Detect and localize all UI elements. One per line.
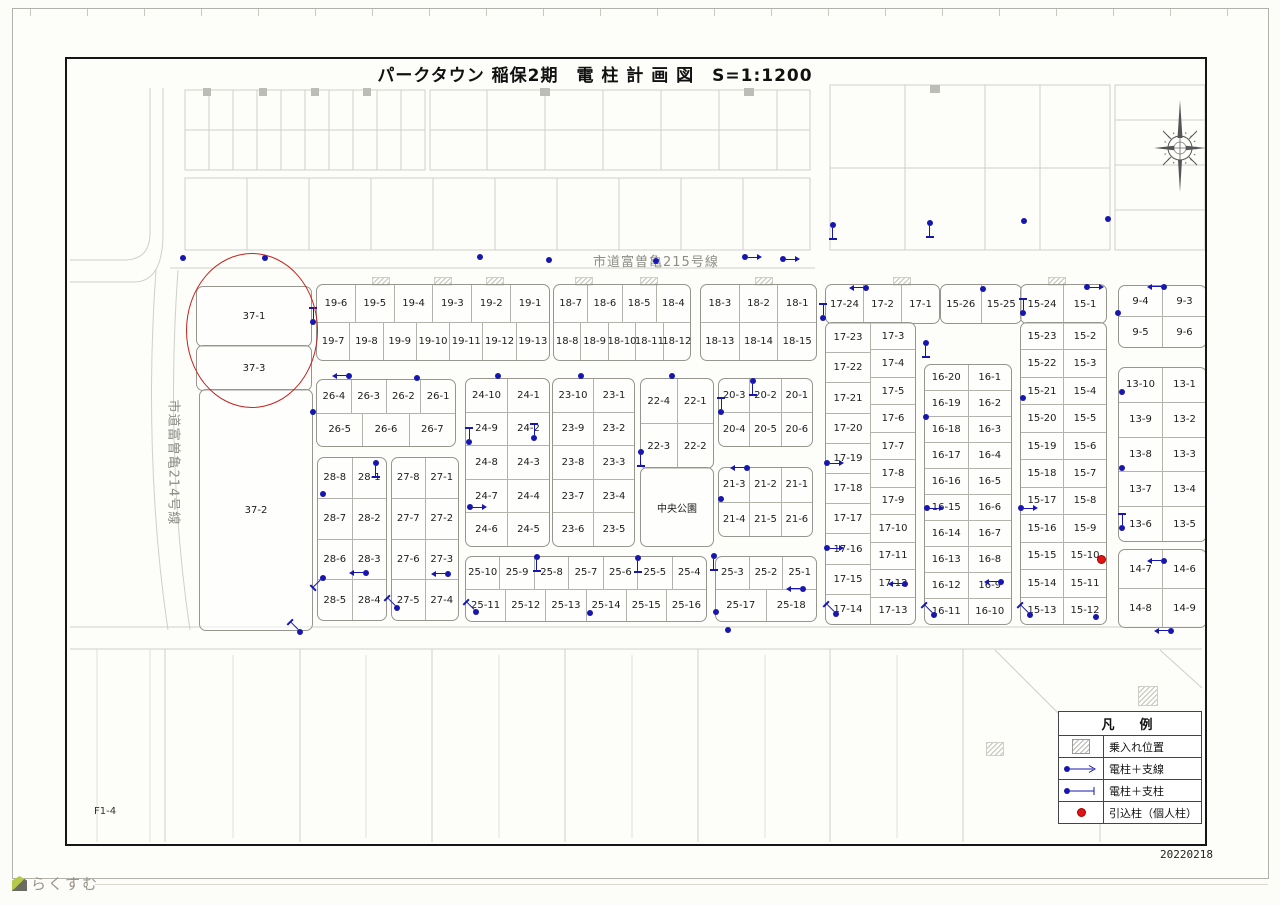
- lot-25-9: 25-9: [500, 557, 534, 589]
- lot-23-8: 23-8: [553, 446, 593, 480]
- lot-16-1: 16-1: [969, 365, 1012, 391]
- lot-14-7: 14-7: [1119, 550, 1163, 588]
- block-row: 20-420-520-6: [719, 413, 812, 446]
- block-37-2: 37-2: [199, 389, 313, 631]
- lot-25-15: 25-15: [627, 590, 667, 622]
- pole-guy-wire-symbol: [845, 284, 869, 291]
- lot-18-4: 18-4: [657, 285, 690, 322]
- service-pole-symbol: [1097, 555, 1106, 564]
- lot-25-2: 25-2: [750, 557, 784, 589]
- lot-24-6: 24-6: [466, 513, 507, 546]
- lot-17-15: 17-15: [826, 565, 870, 595]
- lot-16-13: 16-13: [925, 547, 968, 573]
- lot-17-19: 17-19: [826, 444, 870, 474]
- lot-25-18: 25-18: [767, 590, 817, 622]
- lot-25-16: 25-16: [667, 590, 706, 622]
- pole-symbol: [477, 254, 501, 261]
- pole-symbol: [1021, 218, 1045, 225]
- block-column: 23-1023-923-823-723-6: [553, 379, 594, 546]
- lot-16-10: 16-10: [969, 599, 1012, 624]
- lot-17-5: 17-5: [871, 378, 915, 405]
- lot-14-8: 14-8: [1119, 589, 1163, 627]
- lot-23-1: 23-1: [594, 379, 634, 413]
- lot-19-4: 19-4: [395, 285, 434, 322]
- pole-guy-wire-symbol: [824, 460, 848, 467]
- block-16: 16-2016-1916-1816-1716-1616-1516-1416-13…: [924, 364, 1012, 625]
- lot-18-12: 18-12: [664, 323, 690, 360]
- lot-15-4: 15-4: [1064, 378, 1106, 405]
- red-dot-icon: [1059, 802, 1104, 823]
- lot-19-11: 19-11: [450, 323, 483, 360]
- block-row: 19-719-819-919-1019-1119-1219-13: [317, 323, 549, 360]
- block-row: 21-421-521-6: [719, 503, 812, 537]
- lot-26-3: 26-3: [352, 380, 387, 413]
- lot-19-5: 19-5: [356, 285, 395, 322]
- pole-symbol: [1105, 216, 1129, 223]
- legend-row-driveway: 乗入れ位置: [1059, 736, 1201, 758]
- pole-symbol: [414, 375, 438, 382]
- legend-title: 凡 例: [1059, 712, 1201, 736]
- lot-16-3: 16-3: [969, 417, 1012, 443]
- lot-15-2: 15-2: [1064, 323, 1106, 350]
- pole-strut-symbol: [466, 421, 473, 445]
- lot-24-8: 24-8: [466, 446, 507, 480]
- lot-27-6: 27-6: [392, 540, 425, 581]
- lot-19-3: 19-3: [433, 285, 472, 322]
- lot-9-5: 9-5: [1119, 317, 1163, 347]
- block-park: 中央公園: [640, 467, 714, 547]
- lot-28-4: 28-4: [353, 580, 387, 620]
- lot-13-4: 13-4: [1163, 472, 1206, 507]
- pole-symbol: [1119, 465, 1143, 472]
- lot-25-6: 25-6: [604, 557, 638, 589]
- pole-symbol: [669, 373, 693, 380]
- lot-23-6: 23-6: [553, 513, 593, 546]
- pole-symbol: [1119, 389, 1143, 396]
- lot-16-20: 16-20: [925, 365, 968, 391]
- lot-26-5: 26-5: [317, 414, 363, 447]
- block-row: 17-2417-217-1: [826, 285, 939, 323]
- lot-26-4: 26-4: [317, 380, 352, 413]
- pole-guy-wire-symbol: [1018, 505, 1042, 512]
- lot-24-3: 24-3: [508, 446, 549, 480]
- lot-24-2: 24-2: [508, 413, 549, 447]
- lot-18-15: 18-15: [778, 323, 816, 360]
- lot-37-2: 37-2: [200, 390, 312, 630]
- lot-18-10: 18-10: [609, 323, 636, 360]
- block-row: 37-2: [200, 390, 312, 630]
- lot-17-20: 17-20: [826, 414, 870, 444]
- lot-15-14: 15-14: [1021, 570, 1063, 597]
- lot-25-3: 25-3: [716, 557, 750, 589]
- block-column: 27-127-227-327-4: [426, 458, 459, 620]
- block-22: 22-422-122-322-2: [640, 378, 714, 469]
- pole-symbol: [1020, 395, 1044, 402]
- pole-guy-wire-symbol: [726, 464, 750, 471]
- legend-label: 電柱＋支線: [1104, 758, 1201, 779]
- lot-25-4: 25-4: [673, 557, 706, 589]
- lot-18-9: 18-9: [581, 323, 608, 360]
- lot-28-1: 28-1: [353, 458, 387, 499]
- pole-guy-wire-symbol: [345, 569, 369, 576]
- pole-symbol: [180, 255, 204, 262]
- lot-23-9: 23-9: [553, 413, 593, 447]
- road-label-214: 市道富曽亀214号線: [166, 393, 185, 533]
- pole-guy-wire-symbol: [1143, 557, 1167, 564]
- lot-16-8: 16-8: [969, 547, 1012, 573]
- block-25L: 25-1025-925-825-725-625-525-425-1125-122…: [465, 556, 707, 622]
- block-column: 15-2315-2215-2115-2015-1915-1815-1715-16…: [1021, 323, 1064, 624]
- lot-9-3: 9-3: [1163, 286, 1206, 316]
- pole-symbol: [1115, 310, 1139, 317]
- lot-15-7: 15-7: [1064, 460, 1106, 487]
- lot-25-13: 25-13: [546, 590, 586, 622]
- lot-23-4: 23-4: [594, 480, 634, 514]
- pole-symbol: [495, 373, 519, 380]
- pole-arrow-icon: [1059, 758, 1104, 779]
- pole-strut-symbol: [372, 460, 379, 484]
- block-column: 24-1024-924-824-724-6: [466, 379, 508, 546]
- lot-14-6: 14-6: [1163, 550, 1206, 588]
- pole-strut-symbol: [634, 555, 641, 579]
- driveway-hatch: [986, 742, 1004, 756]
- lot-17-6: 17-6: [871, 405, 915, 432]
- lot-15-24: 15-24: [1021, 285, 1064, 323]
- lot-16-16: 16-16: [925, 469, 968, 495]
- lot-13-3: 13-3: [1163, 438, 1206, 473]
- lot-25-7: 25-7: [569, 557, 603, 589]
- block-column: 16-116-216-316-416-516-616-716-816-916-1…: [969, 365, 1012, 624]
- block-row: 26-526-626-7: [317, 414, 455, 447]
- north-compass-icon: [1148, 98, 1212, 194]
- lot-15-20: 15-20: [1021, 405, 1063, 432]
- lot-22-3: 22-3: [641, 424, 678, 468]
- pole-symbol: [980, 286, 1004, 293]
- block-27: 27-827-727-627-527-127-227-327-4: [391, 457, 459, 621]
- block-26: 26-426-326-226-126-526-626-7: [316, 379, 456, 447]
- block-row: 22-422-1: [641, 379, 713, 424]
- lot-23-10: 23-10: [553, 379, 593, 413]
- lot-21-1: 21-1: [782, 468, 812, 502]
- block-column: 28-828-728-628-5: [318, 458, 353, 620]
- lot-22-4: 22-4: [641, 379, 678, 423]
- driveway-hatch-icon: [1059, 736, 1104, 757]
- lot-20-5: 20-5: [750, 413, 781, 446]
- watermark-line: [95, 884, 1268, 885]
- block-column: 17-2317-2217-2117-2017-1917-1817-1717-16…: [826, 323, 871, 624]
- lot-16-6: 16-6: [969, 495, 1012, 521]
- block-row: 18-818-918-1018-1118-12: [554, 323, 690, 360]
- pole-guy-wire-symbol: [1084, 284, 1108, 291]
- watermark-text: らくすむ: [31, 873, 99, 894]
- lot-19-6: 19-6: [317, 285, 356, 322]
- lot-25-10: 25-10: [466, 557, 500, 589]
- pole-guy-wire-symbol: [1150, 627, 1174, 634]
- pole-strut-symbol: [820, 297, 827, 321]
- lot-13-5: 13-5: [1163, 507, 1206, 541]
- lot-17-3: 17-3: [871, 323, 915, 350]
- pole-guy-wire-symbol: [782, 585, 806, 592]
- lot-15-26: 15-26: [941, 285, 982, 323]
- lot-26-6: 26-6: [363, 414, 409, 447]
- lot-23-5: 23-5: [594, 513, 634, 546]
- lot-15-23: 15-23: [1021, 323, 1063, 350]
- date-label: 20220218: [1143, 848, 1213, 861]
- lot-24-4: 24-4: [508, 480, 549, 514]
- block-column: 16-2016-1916-1816-1716-1616-1516-1416-13…: [925, 365, 969, 624]
- lot-25-5: 25-5: [638, 557, 672, 589]
- pole-symbol: [546, 257, 570, 264]
- pole-symbol: [718, 496, 742, 503]
- lot-26-7: 26-7: [410, 414, 455, 447]
- watermark: らくすむ: [12, 873, 99, 894]
- lot-16-5: 16-5: [969, 469, 1012, 495]
- lot-23-3: 23-3: [594, 446, 634, 480]
- lot-26-1: 26-1: [421, 380, 455, 413]
- pole-symbol: [578, 373, 602, 380]
- block-row: 18-318-218-1: [701, 285, 816, 323]
- block-row: 26-426-326-226-1: [317, 380, 455, 414]
- pole-strut-symbol: [637, 449, 644, 473]
- lot-24-10: 24-10: [466, 379, 507, 413]
- pole-guy-wire-symbol: [328, 372, 352, 379]
- lot-13-1: 13-1: [1163, 368, 1206, 403]
- block-column: 15-215-315-415-515-615-715-815-915-1015-…: [1064, 323, 1106, 624]
- lot-25-1: 25-1: [783, 557, 816, 589]
- lot-17-13: 17-13: [871, 598, 915, 624]
- lot-27-1: 27-1: [426, 458, 459, 499]
- block-column: 17-317-417-517-617-717-817-917-1017-1117…: [871, 323, 915, 624]
- pole-strut-symbol: [1119, 507, 1126, 531]
- lot-19-7: 19-7: [317, 323, 350, 360]
- block-row: 20-320-220-1: [719, 379, 812, 413]
- block-row: 14-814-9: [1119, 589, 1206, 627]
- pole-strut-symbol: [829, 222, 836, 246]
- block-20: 20-320-220-120-420-520-6: [718, 378, 813, 447]
- lot-18-13: 18-13: [701, 323, 740, 360]
- legend-row-service-pole: 引込柱（個人柱）: [1059, 802, 1201, 823]
- block-19: 19-619-519-419-319-219-119-719-819-919-1…: [316, 284, 550, 361]
- lot-16-17: 16-17: [925, 443, 968, 469]
- block-row: 18-718-618-518-4: [554, 285, 690, 323]
- lot-18-6: 18-6: [588, 285, 622, 322]
- lot-21-2: 21-2: [750, 468, 781, 502]
- lot-13-9: 13-9: [1119, 403, 1162, 438]
- lot-17-23: 17-23: [826, 323, 870, 353]
- pole-symbol: [310, 409, 334, 416]
- lot-27-2: 27-2: [426, 499, 459, 540]
- lot-17-10: 17-10: [871, 515, 915, 542]
- lot-17-7: 17-7: [871, 433, 915, 460]
- pole-guy-wire-symbol: [780, 256, 804, 263]
- lot-13-2: 13-2: [1163, 403, 1206, 438]
- lot-19-9: 19-9: [384, 323, 417, 360]
- legend-box: 凡 例 乗入れ位置 電柱＋支線 電柱＋支柱 引込柱（個人柱）: [1058, 711, 1202, 824]
- block-row: 25-1725-18: [716, 590, 816, 622]
- lot-17-21: 17-21: [826, 383, 870, 413]
- block-row: 25-1125-1225-1325-1425-1525-16: [466, 590, 706, 622]
- lot-18-8: 18-8: [554, 323, 581, 360]
- lot-21-4: 21-4: [719, 503, 750, 537]
- lot-15-9: 15-9: [1064, 515, 1106, 542]
- lot-16-12: 16-12: [925, 573, 968, 599]
- legend-label: 電柱＋支柱: [1104, 780, 1201, 801]
- lot-17-1: 17-1: [902, 285, 939, 323]
- lot-15-22: 15-22: [1021, 350, 1063, 377]
- pole-guy-wire-symbol: [427, 570, 451, 577]
- lot-18-5: 18-5: [623, 285, 657, 322]
- lot-22-1: 22-1: [678, 379, 714, 423]
- lot-13-10: 13-10: [1119, 368, 1162, 403]
- lot-15-8: 15-8: [1064, 488, 1106, 515]
- pole-strut-icon: [1059, 780, 1104, 801]
- block-column: 13-113-213-313-413-5: [1163, 368, 1206, 541]
- pole-symbol: [713, 609, 737, 616]
- lot-15-3: 15-3: [1064, 350, 1106, 377]
- lot-27-8: 27-8: [392, 458, 425, 499]
- lot-24-5: 24-5: [508, 513, 549, 546]
- lot-25-12: 25-12: [506, 590, 546, 622]
- highlight-circle: [186, 253, 318, 408]
- lot-16-9: 16-9: [969, 573, 1012, 599]
- legend-row-pole-guy-wire: 電柱＋支線: [1059, 758, 1201, 780]
- lot-18-7: 18-7: [554, 285, 588, 322]
- lot-21-5: 21-5: [750, 503, 781, 537]
- lot-15-6: 15-6: [1064, 433, 1106, 460]
- lot-17-22: 17-22: [826, 353, 870, 383]
- lot-15-15: 15-15: [1021, 543, 1063, 570]
- lot-15-19: 15-19: [1021, 433, 1063, 460]
- driveway-hatch: [1138, 686, 1158, 706]
- pole-symbol: [725, 627, 749, 634]
- lot-15-18: 15-18: [1021, 460, 1063, 487]
- lot-27-5: 27-5: [392, 580, 425, 620]
- lot-23-7: 23-7: [553, 480, 593, 514]
- lot-25-17: 25-17: [716, 590, 767, 622]
- pole-guy-wire-symbol: [924, 505, 948, 512]
- pole-guy-wire-symbol: [742, 254, 766, 261]
- lot-21-6: 21-6: [782, 503, 812, 537]
- lot-24-1: 24-1: [508, 379, 549, 413]
- lot-中央公園: 中央公園: [641, 468, 713, 546]
- lot-16-4: 16-4: [969, 443, 1012, 469]
- drawing-title: パークタウン 稲保2期 電 柱 計 画 図 S=1:1200: [370, 61, 820, 86]
- legend-label: 乗入れ位置: [1104, 736, 1201, 757]
- block-row: 14-714-6: [1119, 550, 1206, 589]
- block-column: 24-124-224-324-424-5: [508, 379, 549, 546]
- pole-guy-wire-symbol: [884, 580, 908, 587]
- pole-strut-symbol: [926, 220, 933, 244]
- lot-9-6: 9-6: [1163, 317, 1206, 347]
- block-24: 24-1024-924-824-724-624-124-224-324-424-…: [465, 378, 550, 547]
- pole-symbol: [1093, 614, 1117, 621]
- block-row: 19-619-519-419-319-219-1: [317, 285, 549, 323]
- lot-18-14: 18-14: [740, 323, 779, 360]
- block-row: 9-59-6: [1119, 317, 1206, 347]
- pole-strut-symbol: [710, 553, 717, 577]
- lot-19-12: 19-12: [483, 323, 516, 360]
- lot-18-2: 18-2: [740, 285, 779, 322]
- block-column: 27-827-727-627-5: [392, 458, 426, 620]
- lot-16-14: 16-14: [925, 521, 968, 547]
- pole-symbol: [653, 258, 677, 265]
- lot-15-16: 15-16: [1021, 515, 1063, 542]
- legend-label: 引込柱（個人柱）: [1104, 802, 1201, 823]
- block-row: 22-322-2: [641, 424, 713, 468]
- block-row: 中央公園: [641, 468, 713, 546]
- block-row: 18-1318-1418-15: [701, 323, 816, 360]
- block-column: 23-123-223-323-423-5: [594, 379, 634, 546]
- lot-23-2: 23-2: [594, 413, 634, 447]
- lot-19-8: 19-8: [350, 323, 383, 360]
- block-17T: 17-2417-217-1: [825, 284, 940, 324]
- pole-guy-wire-symbol: [467, 504, 491, 511]
- lot-17-4: 17-4: [871, 350, 915, 377]
- lot-20-4: 20-4: [719, 413, 750, 446]
- lot-28-7: 28-7: [318, 499, 352, 540]
- lot-19-13: 19-13: [517, 323, 549, 360]
- pole-strut-symbol: [533, 554, 540, 578]
- lot-28-5: 28-5: [318, 580, 352, 620]
- pole-strut-symbol: [1020, 292, 1027, 316]
- lot-26-2: 26-2: [387, 380, 422, 413]
- lot-20-1: 20-1: [782, 379, 812, 412]
- pole-strut-symbol: [718, 391, 725, 415]
- pole-symbol: [587, 610, 611, 617]
- lot-17-17: 17-17: [826, 504, 870, 534]
- lot-22-2: 22-2: [678, 424, 714, 468]
- lot-17-2: 17-2: [864, 285, 902, 323]
- sheet-label: F1-4: [94, 806, 116, 817]
- pole-symbol: [320, 491, 344, 498]
- house-logo-icon: [12, 876, 27, 891]
- pole-strut-symbol: [531, 417, 538, 441]
- lot-15-5: 15-5: [1064, 405, 1106, 432]
- block-18L: 18-718-618-518-418-818-918-1018-1118-12: [553, 284, 691, 361]
- lot-17-9: 17-9: [871, 488, 915, 515]
- lot-14-9: 14-9: [1163, 589, 1206, 627]
- lot-13-7: 13-7: [1119, 472, 1162, 507]
- lot-18-11: 18-11: [636, 323, 663, 360]
- pole-guy-wire-symbol: [980, 578, 1004, 585]
- lot-27-4: 27-4: [426, 580, 459, 620]
- lot-17-8: 17-8: [871, 460, 915, 487]
- pole-strut-symbol: [749, 378, 756, 402]
- block-23: 23-1023-923-823-723-623-123-223-323-423-…: [552, 378, 635, 547]
- lot-27-7: 27-7: [392, 499, 425, 540]
- block-18R: 18-318-218-118-1318-1418-15: [700, 284, 817, 361]
- lot-16-2: 16-2: [969, 391, 1012, 417]
- pole-guy-wire-symbol: [1143, 283, 1167, 290]
- lot-19-2: 19-2: [472, 285, 511, 322]
- pole-symbol: [923, 414, 947, 421]
- lot-18-1: 18-1: [778, 285, 816, 322]
- lot-25-8: 25-8: [535, 557, 569, 589]
- lot-17-11: 17-11: [871, 543, 915, 570]
- pole-guy-wire-symbol: [824, 545, 848, 552]
- lot-20-6: 20-6: [782, 413, 812, 446]
- lot-19-1: 19-1: [511, 285, 549, 322]
- lot-28-2: 28-2: [353, 499, 387, 540]
- lot-17-18: 17-18: [826, 474, 870, 504]
- block-15C: 15-2315-2215-2115-2015-1915-1815-1715-16…: [1020, 322, 1107, 625]
- block-row: 25-1025-925-825-725-625-525-4: [466, 557, 706, 590]
- pole-strut-symbol: [922, 340, 929, 364]
- legend-row-pole-strut: 電柱＋支柱: [1059, 780, 1201, 802]
- lot-16-7: 16-7: [969, 521, 1012, 547]
- lot-15-11: 15-11: [1064, 570, 1106, 597]
- lot-19-10: 19-10: [417, 323, 450, 360]
